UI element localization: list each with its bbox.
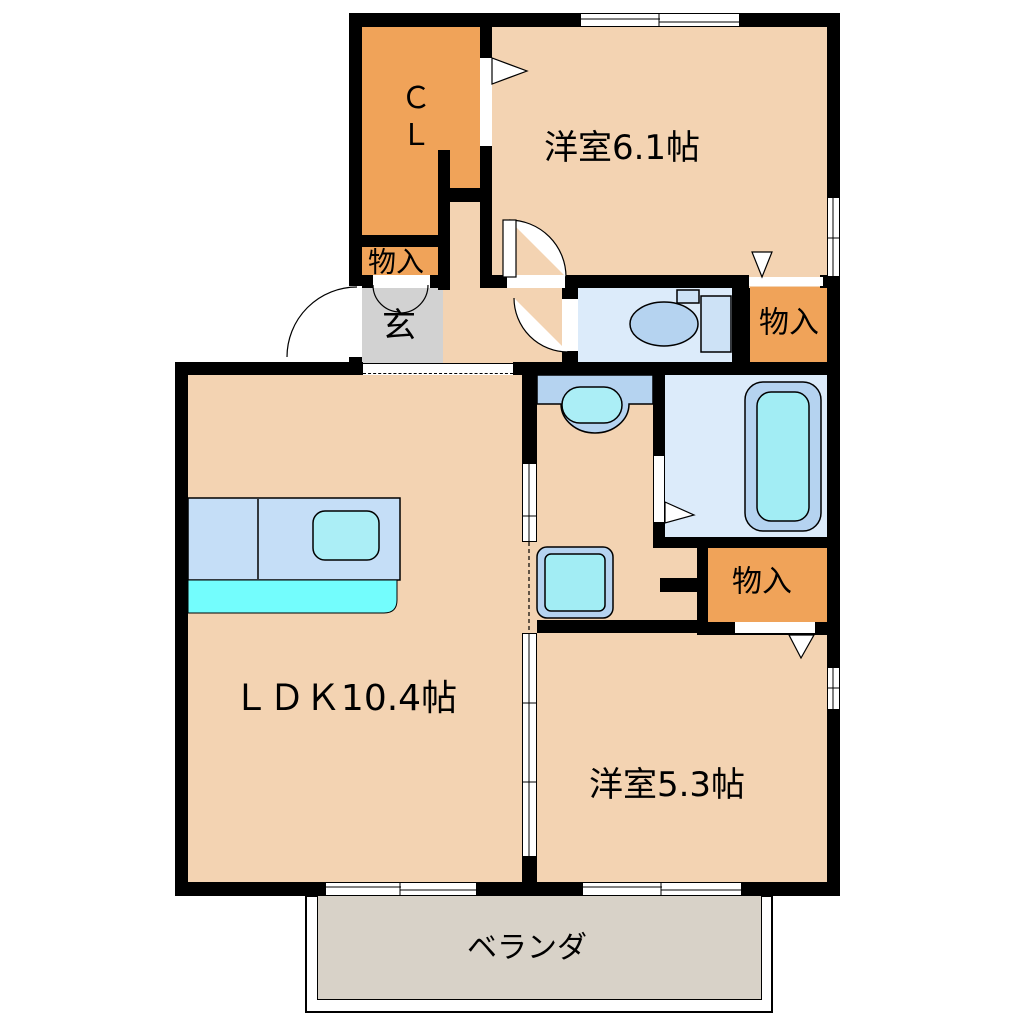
window-top: [580, 13, 740, 27]
wall: [450, 188, 492, 202]
label-storage-mid: 物入: [759, 307, 819, 339]
wall: [653, 375, 665, 455]
wall: [175, 362, 363, 375]
window-right-upper: [827, 197, 840, 277]
closet-cl-door-gap: [480, 58, 492, 146]
wall: [522, 857, 537, 896]
floor-plan: ＣＬ 洋室6.1帖 物入 玄 物入 物入 ＬＤＫ10.4帖 洋室5.3帖 ベラン…: [0, 0, 1020, 1020]
wall: [430, 275, 450, 288]
west61-door-gap: [507, 275, 565, 288]
wall: [438, 150, 450, 290]
label-storage-top: 物入: [368, 247, 424, 276]
wall: [827, 13, 840, 896]
washroom-sliding-door: [522, 463, 537, 542]
entry-door-gap: [349, 286, 362, 357]
label-veranda: ベランダ: [467, 932, 587, 964]
toilet-room: [578, 288, 732, 362]
wall: [175, 362, 188, 895]
label-closet-cl: ＣＬ: [399, 80, 433, 154]
label-room-west-53: 洋室5.3帖: [589, 768, 745, 804]
storage-low-door-gap: [735, 622, 815, 633]
wall: [653, 537, 827, 548]
label-storage-low: 物入: [732, 566, 792, 598]
toilet-door-gap: [562, 298, 578, 352]
label-ldk: ＬＤＫ10.4帖: [233, 680, 457, 718]
wall: [732, 288, 750, 362]
entrance-threshold: [363, 363, 513, 374]
wall: [565, 275, 749, 288]
label-room-west-61: 洋室6.1帖: [544, 131, 700, 167]
window-bottom-west53: [582, 882, 742, 896]
bath-door-leaf: [653, 455, 665, 523]
wall: [175, 580, 255, 592]
entry-door-arc: [287, 287, 357, 357]
window-right-lower: [827, 667, 840, 710]
bathroom: [665, 375, 827, 537]
closet-cl-lower-right: [450, 150, 480, 188]
window-bottom-ldk: [325, 882, 477, 896]
storage-mid-door-gap: [749, 277, 823, 286]
wall: [660, 578, 697, 592]
west53-sliding-door: [522, 633, 537, 857]
label-entrance: 玄: [382, 309, 416, 345]
wall: [522, 375, 537, 463]
wall: [480, 275, 507, 288]
wall: [513, 362, 827, 375]
wall: [537, 620, 708, 633]
closet-cl-lower-left: [362, 150, 438, 235]
